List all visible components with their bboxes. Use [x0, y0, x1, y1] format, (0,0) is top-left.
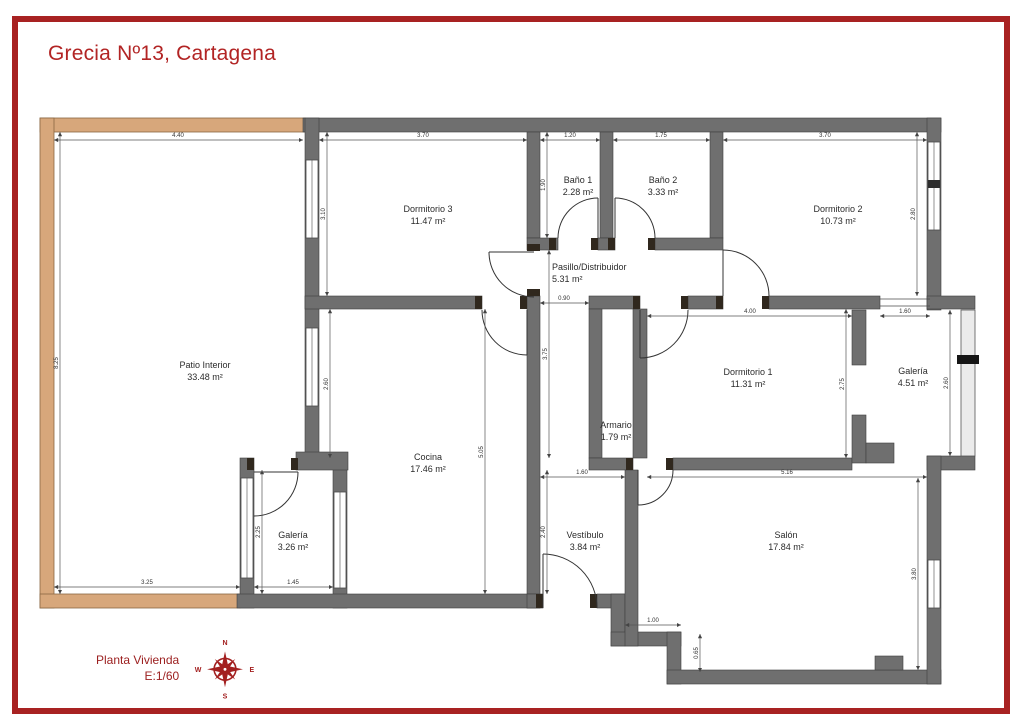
plan-label: Planta Vivienda	[96, 652, 179, 668]
dim-salon-right: 3.80	[912, 568, 918, 580]
dim-vestibulo-left: 2.40	[541, 526, 547, 538]
room-area-pasillo: 5.31 m²	[552, 274, 583, 284]
room-area-vestibulo: 3.84 m²	[570, 542, 601, 552]
dim-cocina-right: 5.05	[479, 446, 485, 458]
dim-dorm2-right: 2.80	[911, 208, 917, 220]
room-name-vestibulo: Vestíbulo	[566, 530, 603, 540]
dim-cocina-left: 2.60	[324, 378, 330, 390]
room-area-dorm3: 11.47 m²	[411, 216, 446, 226]
galeria-glass-mullion	[957, 355, 979, 364]
dim-galeria-right: 2.60	[944, 377, 950, 389]
footer: Planta Vivienda E:1/60 N E S W	[96, 636, 257, 700]
room-name-galeria-bl: Galería	[278, 530, 308, 540]
scale-label: E:1/60	[96, 668, 179, 684]
floor-plan-page: Grecia Nº13, Cartagena	[0, 0, 1024, 724]
room-name-dorm1: Dormitorio 1	[723, 367, 772, 377]
room-area-bano1: 2.28 m²	[563, 187, 594, 197]
dim-pasillo-width: 0.90	[558, 296, 570, 302]
room-area-galeria-right: 4.51 m²	[898, 378, 929, 388]
room-area-dorm2: 10.73 m²	[820, 216, 856, 226]
room-area-galeria-bl: 3.26 m²	[278, 542, 309, 552]
doors	[254, 198, 769, 608]
dim-dorm3-left: 3.10	[321, 208, 327, 220]
room-name-bano1: Baño 1	[564, 175, 593, 185]
dim-vestibulo-top: 1.60	[576, 470, 588, 476]
dim-patio-bottom: 3.25	[141, 580, 153, 586]
room-name-dorm3: Dormitorio 3	[403, 204, 452, 214]
compass-w: W	[195, 667, 202, 674]
patio-walls	[40, 118, 305, 608]
walls	[237, 118, 975, 684]
room-area-patio: 33.48 m²	[187, 372, 223, 382]
dim-left-patio: 8.25	[54, 357, 60, 369]
room-name-bano2: Baño 2	[649, 175, 678, 185]
dim-salon-top: 5.16	[781, 470, 793, 476]
dim-pasillo-length: 3.75	[543, 348, 549, 360]
dim-top-bano2: 1.75	[655, 133, 667, 139]
room-area-dorm1: 11.31 m²	[731, 379, 766, 389]
room-area-bano2: 3.33 m²	[648, 187, 679, 197]
dim-dorm1-right: 2.75	[840, 378, 846, 390]
room-name-armario: Armario	[600, 420, 632, 430]
dim-top-dorm3: 3.70	[417, 133, 429, 139]
dim-dorm1-top: 4.00	[744, 309, 756, 315]
compass-e: E	[250, 667, 255, 674]
room-area-salon: 17.84 m²	[768, 542, 804, 552]
galeria-glass-wall	[961, 310, 975, 456]
dorm2-galeria-opening	[880, 299, 930, 306]
room-area-cocina: 17.46 m²	[410, 464, 446, 474]
dim-entry-step-w: 1.00	[647, 618, 659, 624]
room-name-cocina: Cocina	[414, 452, 442, 462]
room-name-dorm2: Dormitorio 2	[813, 204, 862, 214]
dim-top-patio: 4.40	[172, 133, 184, 139]
dim-bano1-depth: 1.90	[541, 179, 547, 191]
compass-s: S	[223, 694, 228, 700]
door-jambs	[247, 238, 769, 608]
room-name-salon: Salón	[774, 530, 797, 540]
dim-galeria-bl-left: 2.25	[256, 526, 262, 538]
dim-galeria-top: 1.60	[899, 309, 911, 315]
dim-top-dorm2: 3.70	[819, 133, 831, 139]
room-name-patio: Patio Interior	[179, 360, 230, 370]
compass-rose: N E S W	[193, 636, 257, 700]
room-name-pasillo: Pasillo/Distribuidor	[552, 262, 627, 272]
plan-caption: Planta Vivienda E:1/60	[96, 652, 179, 684]
window-mullion	[928, 180, 940, 188]
dim-entry-step-h: 0.65	[694, 647, 700, 659]
room-name-galeria-right: Galería	[898, 366, 928, 376]
room-area-armario: 1.79 m²	[601, 432, 632, 442]
dim-top-bano1: 1.20	[564, 133, 576, 139]
compass-n: N	[223, 640, 228, 647]
floor-plan-drawing: 4.40 3.70 1.20 1.75 3.70 0.90 4.00 1.60 …	[0, 0, 1024, 724]
dim-galeria-bl-bottom: 1.45	[287, 580, 299, 586]
